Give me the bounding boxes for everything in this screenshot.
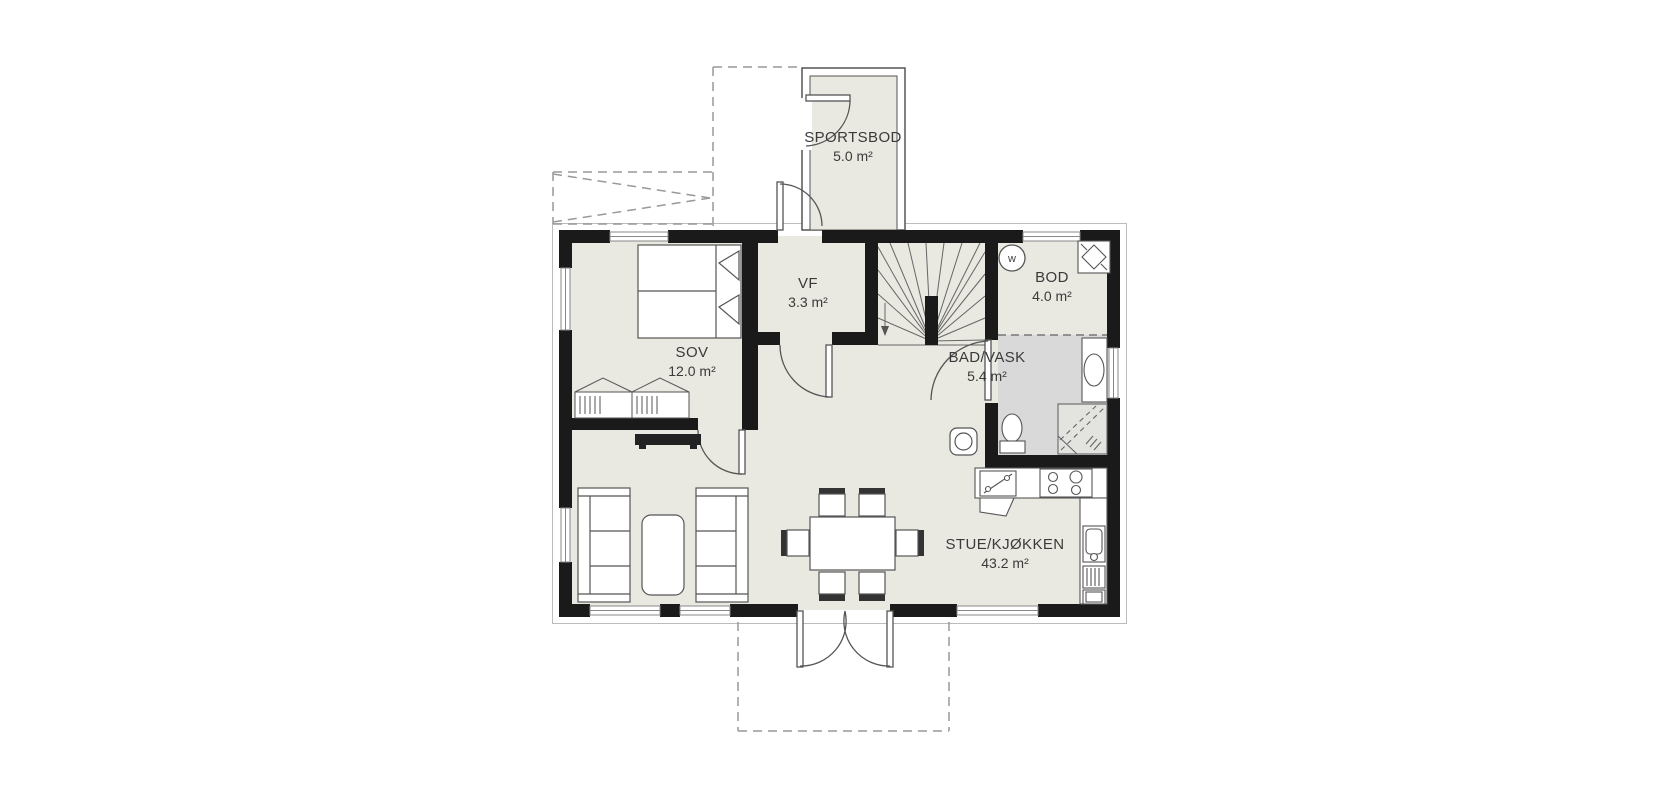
window-sov-top (610, 232, 668, 241)
sportsbod-structure (799, 68, 905, 230)
washing-machine-icon: w (999, 245, 1025, 271)
ventilation-unit-icon (1078, 241, 1110, 273)
staircase (878, 243, 985, 345)
french-doors (797, 611, 893, 667)
cooktop-symbol (1040, 469, 1092, 497)
floor-plan-drawing: w (0, 0, 1670, 800)
window-stue-bottom-1 (590, 606, 660, 615)
vanity-symbol (1082, 338, 1107, 402)
ramp-outline (553, 172, 713, 224)
window-stue-left (561, 508, 570, 562)
floor-plan-canvas: w SPORTSBOD 5.0 m² SOV 12.0 m² VF 3.3 m²… (0, 0, 1670, 800)
window-stue-bottom-2 (680, 606, 730, 615)
window-stue-bottom-3 (957, 606, 1038, 615)
washing-machine-label: w (1007, 253, 1016, 265)
porch-outline (713, 67, 802, 226)
window-bad-right (1109, 348, 1118, 398)
window-sov-left (561, 268, 570, 330)
side-table-symbol (950, 428, 977, 455)
window-bod-top (1023, 232, 1080, 241)
shower-symbol (1058, 404, 1107, 454)
coffee-table-symbol (642, 515, 684, 595)
bed-symbol (638, 245, 741, 338)
terrace-outline (738, 622, 949, 731)
